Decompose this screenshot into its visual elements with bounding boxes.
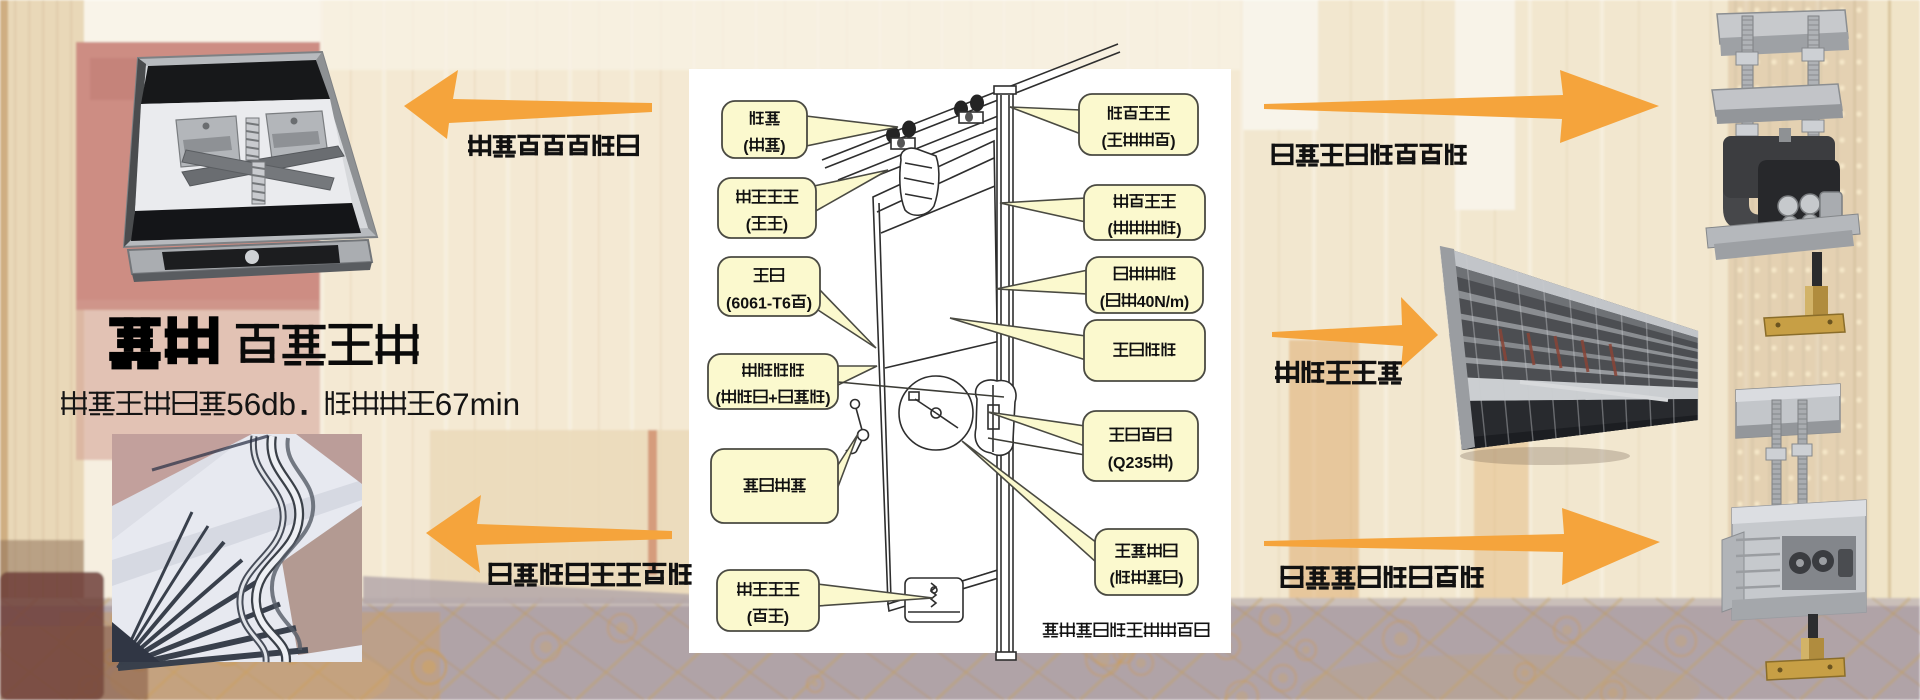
svg-text:): ): [825, 390, 830, 407]
svg-text:): ): [780, 138, 785, 155]
svg-text:(: (: [1100, 294, 1106, 311]
svg-text:(6061-T6: (6061-T6: [726, 295, 791, 312]
svg-text:): ): [1178, 571, 1183, 588]
svg-text:(: (: [746, 217, 752, 234]
svg-text:(: (: [1108, 221, 1114, 238]
svg-text:): ): [1168, 455, 1173, 472]
svg-text:56db: 56db: [226, 387, 296, 422]
svg-text:): ): [784, 609, 789, 626]
svg-text:): ): [1176, 221, 1181, 238]
svg-text:(: (: [747, 609, 753, 626]
svg-text:+: +: [768, 390, 777, 407]
svg-text:40N/m): 40N/m): [1137, 294, 1189, 311]
svg-text:): ): [1170, 133, 1175, 150]
svg-text:(: (: [743, 138, 749, 155]
svg-text:67min: 67min: [435, 387, 520, 422]
svg-text:(Q235: (Q235: [1108, 455, 1153, 472]
svg-text:(: (: [1102, 133, 1108, 150]
svg-text:): ): [783, 217, 788, 234]
svg-text:(: (: [716, 390, 722, 407]
svg-text:): ): [807, 295, 812, 312]
svg-text:(: (: [1110, 571, 1116, 588]
